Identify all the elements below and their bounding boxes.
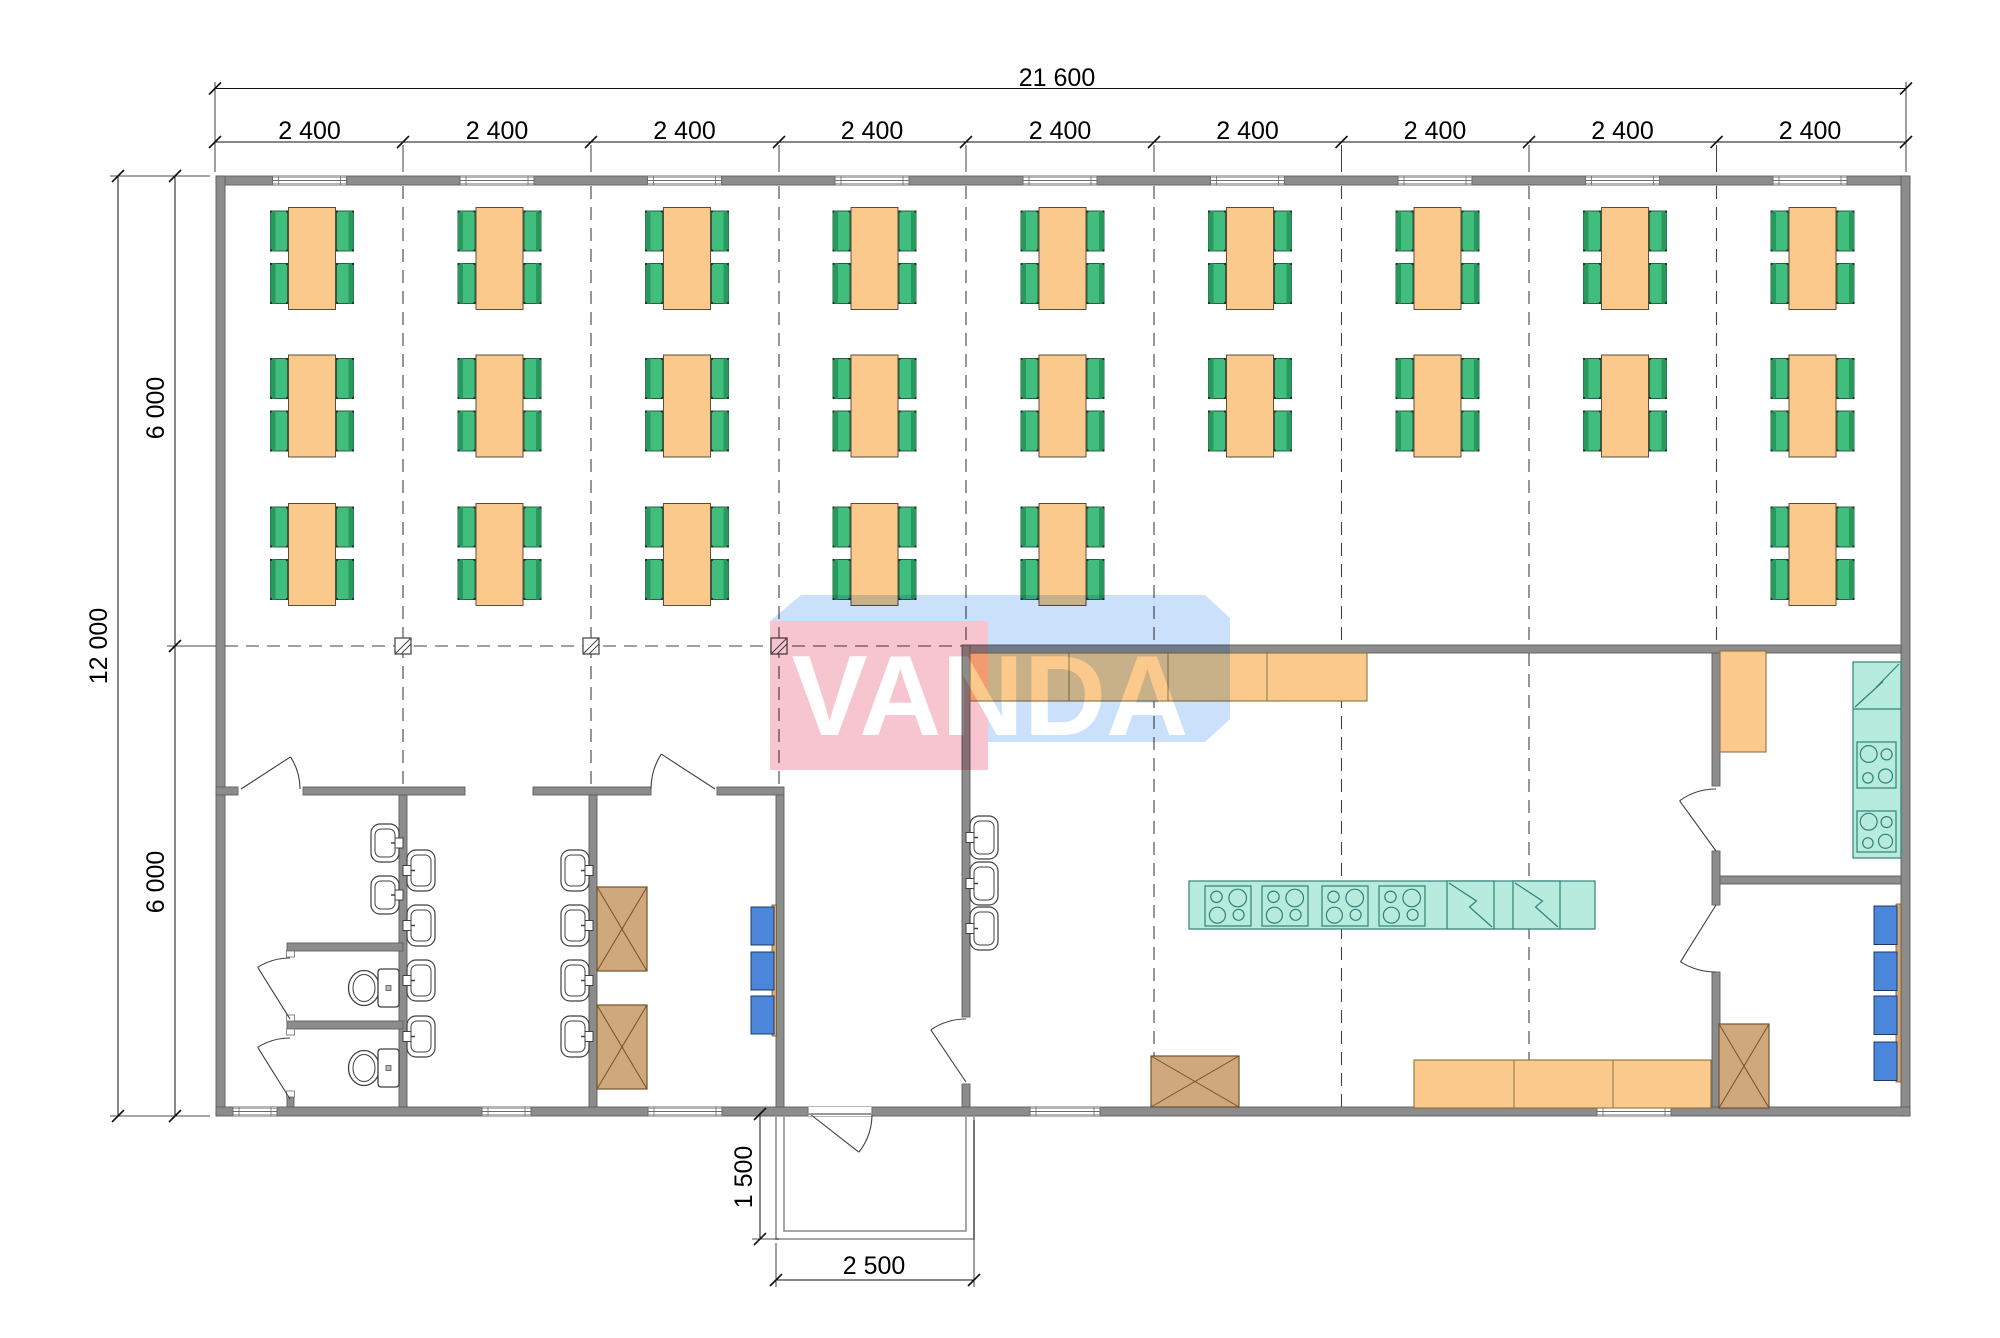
svg-text:2 400: 2 400 [653,117,716,145]
svg-text:2 400: 2 400 [278,117,341,145]
svg-text:2 500: 2 500 [843,1252,906,1280]
svg-text:2 400: 2 400 [1591,117,1654,145]
svg-text:1 500: 1 500 [730,1146,758,1209]
svg-text:6 000: 6 000 [142,377,170,440]
svg-text:2 400: 2 400 [466,117,529,145]
svg-text:2 400: 2 400 [1029,117,1092,145]
svg-text:2 400: 2 400 [1404,117,1467,145]
svg-text:2 400: 2 400 [1216,117,1279,145]
svg-text:6 000: 6 000 [142,851,170,914]
svg-text:2 400: 2 400 [841,117,904,145]
svg-text:2 400: 2 400 [1779,117,1842,145]
svg-text:21 600: 21 600 [1019,64,1095,92]
svg-text:12 000: 12 000 [85,608,113,684]
